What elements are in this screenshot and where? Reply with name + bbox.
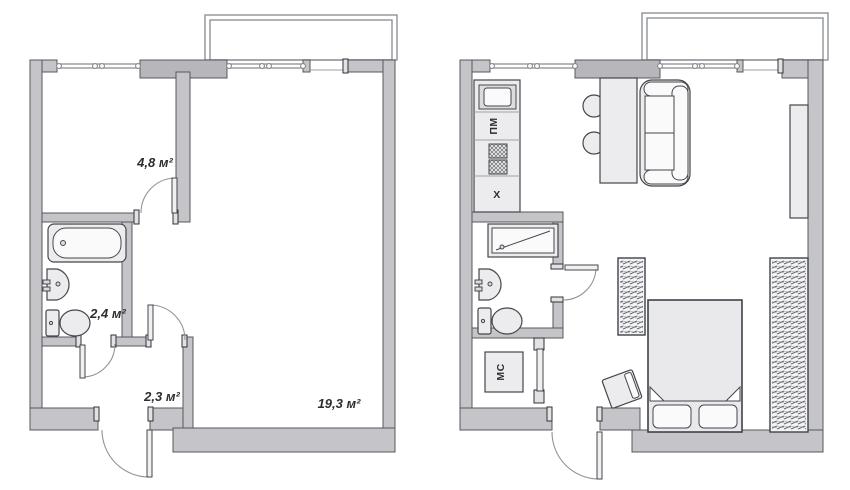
shower — [488, 224, 558, 257]
window — [227, 64, 306, 69]
small-room-door — [141, 178, 177, 213]
wardrobe — [770, 258, 808, 432]
bathroom-door — [80, 344, 115, 378]
window — [658, 64, 740, 69]
wash-basin — [475, 269, 501, 300]
entrance-door — [102, 430, 152, 477]
pillow — [653, 405, 691, 428]
shelf — [790, 105, 808, 218]
plan-after: ПМ Х МС — [460, 13, 828, 479]
window — [490, 64, 578, 69]
closet-door — [537, 349, 543, 391]
room-area-label: 4,8 м² — [136, 155, 173, 170]
bathtub — [48, 224, 126, 262]
dishwasher-label: ПМ — [488, 117, 500, 134]
toilet — [46, 310, 90, 336]
wardrobe — [618, 258, 645, 335]
floor-plan-image: 4,8 м² 2,4 м² 2,3 м² 19,3 м² — [0, 0, 850, 490]
pillow — [699, 405, 737, 428]
bed — [648, 300, 742, 432]
bathroom-door — [563, 265, 598, 300]
hall-door — [148, 305, 185, 340]
entrance-door — [552, 432, 602, 479]
washing-machine: МС — [485, 352, 523, 392]
kitchen-sink — [479, 85, 516, 109]
washing-machine-label: МС — [495, 363, 507, 380]
dining-table — [600, 78, 637, 183]
window — [57, 64, 141, 69]
hall-area-label: 2,3 м² — [143, 389, 180, 404]
floor-plans-canvas: 4,8 м² 2,4 м² 2,3 м² 19,3 м² — [0, 0, 850, 490]
fridge-label: Х — [493, 189, 501, 201]
wash-basin — [43, 269, 69, 300]
living-area-label: 19,3 м² — [318, 396, 362, 411]
balcony — [642, 13, 828, 60]
stool — [602, 369, 642, 408]
window-pier — [575, 60, 660, 78]
balcony — [205, 15, 397, 60]
bathroom-area-label: 2,4 м² — [89, 306, 126, 321]
sofa — [640, 80, 690, 186]
kitchen-counter: ПМ Х — [474, 80, 520, 212]
plan-before: 4,8 м² 2,4 м² 2,3 м² 19,3 м² — [30, 15, 397, 477]
toilet — [478, 308, 522, 334]
